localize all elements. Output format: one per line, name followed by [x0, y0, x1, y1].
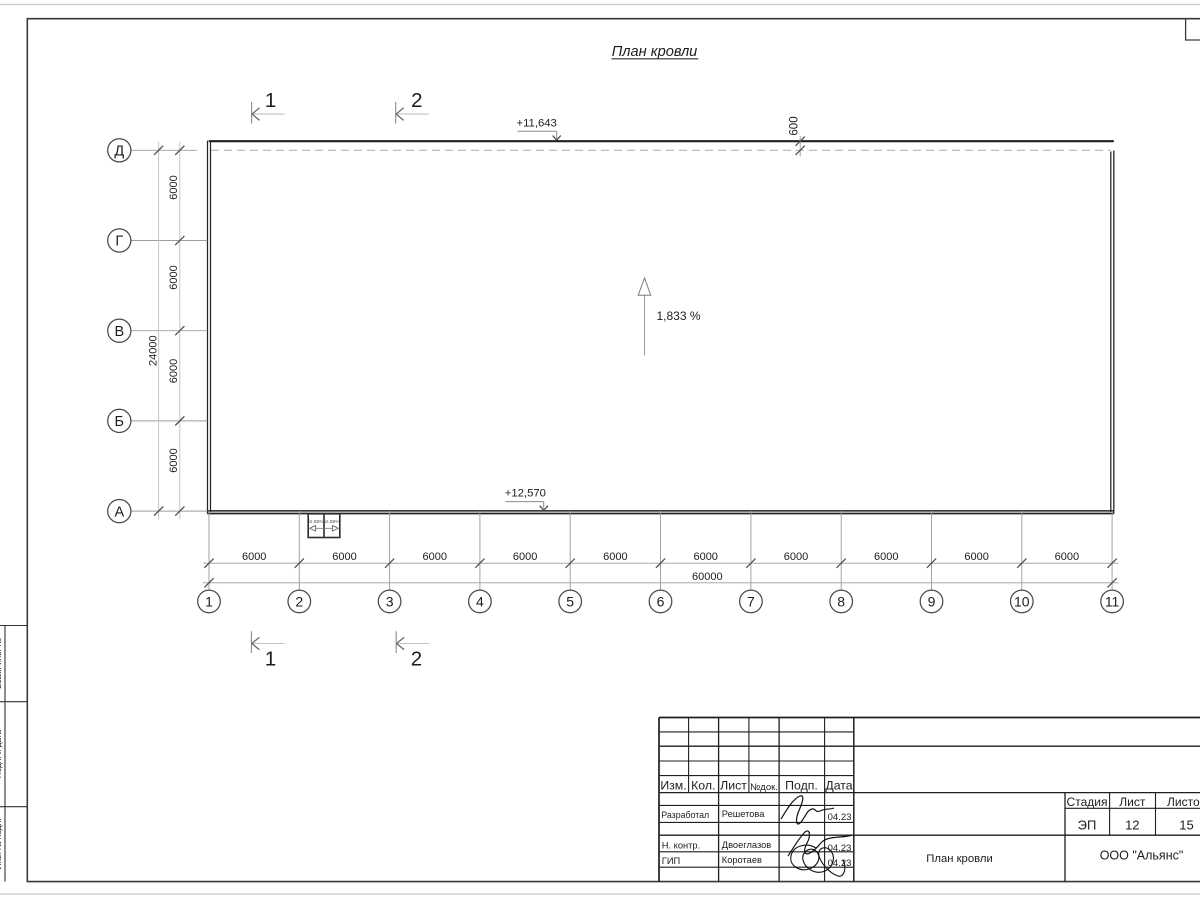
- svg-text:Д: Д: [114, 144, 124, 160]
- svg-text:В: В: [114, 324, 124, 340]
- svg-text:04.23: 04.23: [828, 812, 852, 823]
- svg-text:Двоеглазов: Двоеглазов: [722, 840, 771, 850]
- svg-text:ООО "Альянс": ООО "Альянс": [1100, 848, 1184, 862]
- svg-text:Кол.: Кол.: [691, 778, 715, 792]
- svg-text:6: 6: [657, 593, 665, 609]
- svg-text:6000: 6000: [513, 551, 537, 563]
- svg-text:ГИП: ГИП: [662, 856, 680, 866]
- svg-text:2: 2: [411, 89, 422, 112]
- svg-text:6000: 6000: [423, 551, 447, 563]
- svg-text:6000: 6000: [603, 551, 627, 563]
- svg-text:Дата: Дата: [825, 778, 852, 792]
- svg-text:Г: Г: [115, 234, 123, 250]
- svg-text:6000: 6000: [693, 551, 717, 563]
- svg-text:Лист: Лист: [720, 778, 747, 792]
- svg-text:6000: 6000: [332, 551, 356, 563]
- svg-text:8: 8: [837, 593, 845, 609]
- svg-text:9: 9: [928, 593, 936, 609]
- svg-text:2: 2: [411, 647, 422, 670]
- svg-text:6000: 6000: [784, 551, 808, 563]
- svg-text:План кровли: План кровли: [926, 853, 993, 865]
- svg-text:7: 7: [747, 593, 755, 609]
- svg-text:Подп. и дата: Подп. и дата: [0, 729, 3, 778]
- svg-text:Листов: Листов: [1167, 795, 1200, 809]
- svg-text:6000: 6000: [242, 551, 266, 563]
- svg-text:Б: Б: [115, 414, 125, 430]
- svg-text:3: 3: [386, 593, 394, 609]
- svg-text:60000: 60000: [692, 571, 723, 583]
- svg-text:6000: 6000: [168, 175, 180, 199]
- svg-text:+12,570: +12,570: [505, 488, 546, 500]
- svg-text:6000: 6000: [168, 359, 180, 383]
- svg-text:6000: 6000: [1055, 551, 1079, 563]
- svg-text:600: 600: [789, 116, 801, 135]
- svg-text:№док.: №док.: [750, 782, 778, 793]
- svg-text:10: 10: [1014, 593, 1030, 609]
- svg-text:2: 2: [295, 593, 303, 609]
- svg-text:11: 11: [1105, 593, 1120, 609]
- svg-text:ЭП: ЭП: [1078, 818, 1097, 833]
- svg-text:+11,643: +11,643: [517, 117, 557, 129]
- svg-text:План кровли: План кровли: [612, 44, 698, 60]
- svg-text:1: 1: [205, 593, 213, 609]
- svg-text:Лист: Лист: [1119, 795, 1146, 809]
- svg-text:04.23: 04.23: [828, 858, 852, 869]
- svg-text:Стадия: Стадия: [1067, 795, 1108, 809]
- svg-text:1: 1: [265, 89, 276, 112]
- svg-text:15: 15: [1179, 818, 1193, 833]
- svg-text:4: 4: [476, 593, 484, 609]
- svg-text:i2,5В%: i2,5В%: [325, 519, 340, 524]
- svg-text:Взам. инв. №: Взам. инв. №: [0, 638, 3, 689]
- svg-text:1,833 %: 1,833 %: [657, 309, 701, 323]
- svg-text:Разработал: Разработал: [661, 810, 709, 820]
- svg-text:А: А: [114, 504, 124, 520]
- svg-text:Решетова: Решетова: [722, 809, 765, 819]
- svg-text:6000: 6000: [964, 551, 988, 563]
- svg-text:Н. контр.: Н. контр.: [662, 841, 700, 851]
- svg-text:6000: 6000: [874, 551, 898, 563]
- svg-text:5: 5: [566, 593, 574, 609]
- svg-text:6000: 6000: [168, 448, 180, 472]
- svg-text:1: 1: [265, 647, 276, 670]
- svg-text:Инв. № подл.: Инв. № подл.: [0, 819, 3, 870]
- svg-text:Коротаев: Коротаев: [722, 855, 762, 865]
- svg-text:24000: 24000: [148, 335, 160, 366]
- svg-text:Подп.: Подп.: [785, 778, 818, 792]
- svg-text:i2,5В%: i2,5В%: [309, 519, 324, 524]
- svg-text:Изм.: Изм.: [660, 778, 686, 792]
- svg-text:6000: 6000: [168, 265, 180, 289]
- svg-text:12: 12: [1125, 818, 1139, 833]
